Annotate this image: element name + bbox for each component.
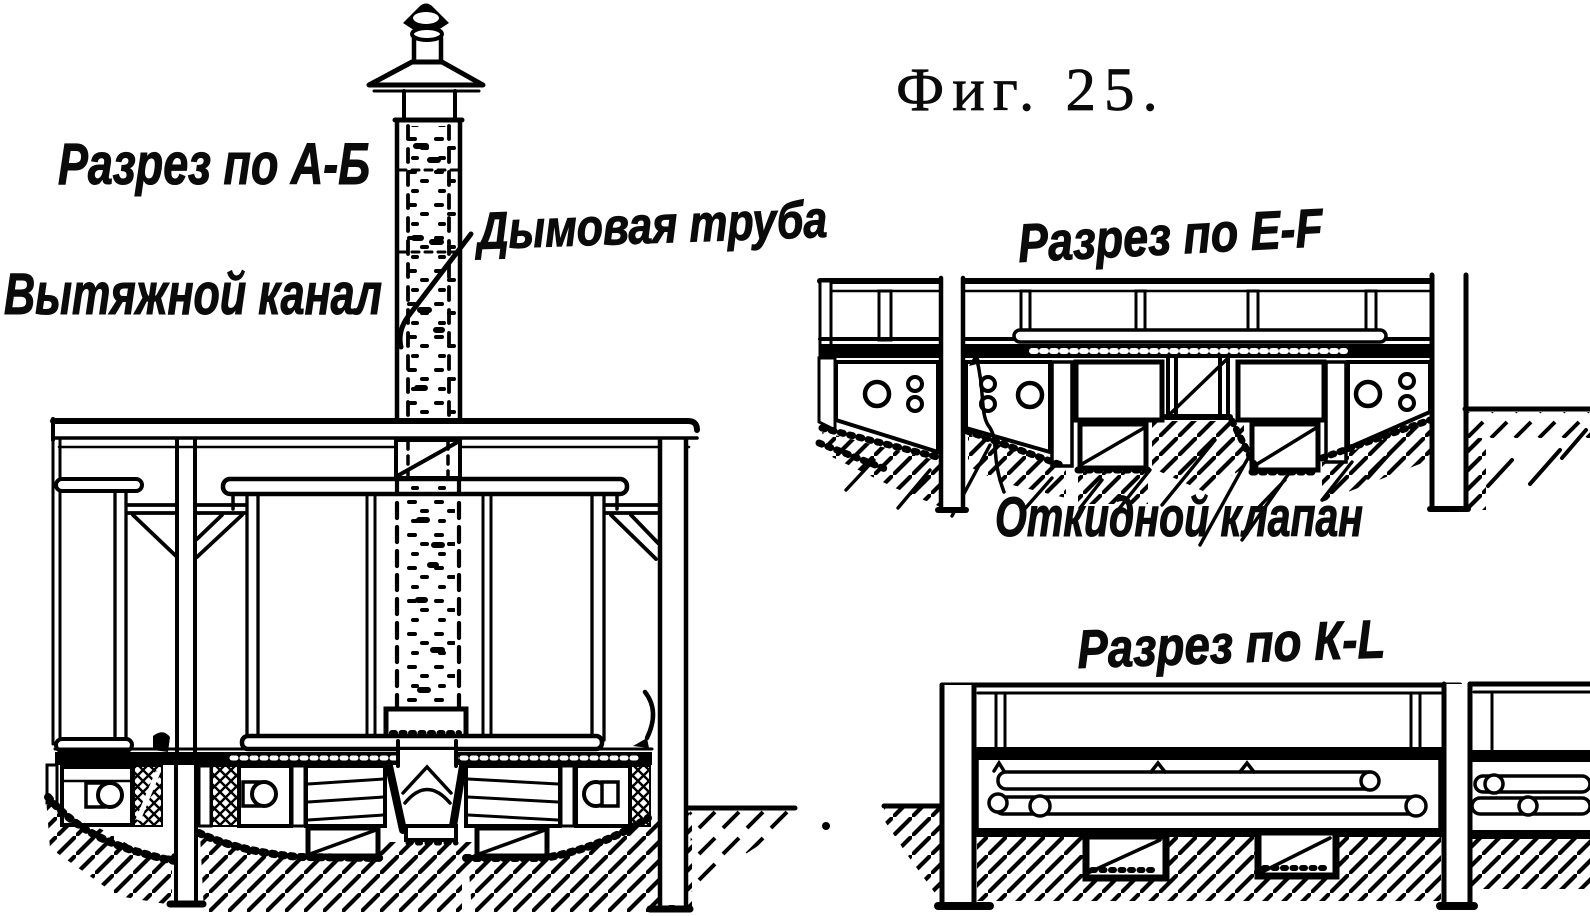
svg-text:Откидной клапан: Откидной клапан [995, 485, 1363, 548]
svg-text:Разрез по А-Б: Разрез по А-Б [58, 132, 370, 197]
svg-text:Фиг. 25.: Фиг. 25. [896, 57, 1166, 124]
svg-text:Разрез по К-L: Разрез по К-L [1076, 609, 1386, 680]
svg-text:Вытяжной канал: Вытяжной канал [4, 262, 382, 327]
svg-text:Дымовая труба: Дымовая труба [473, 191, 828, 261]
